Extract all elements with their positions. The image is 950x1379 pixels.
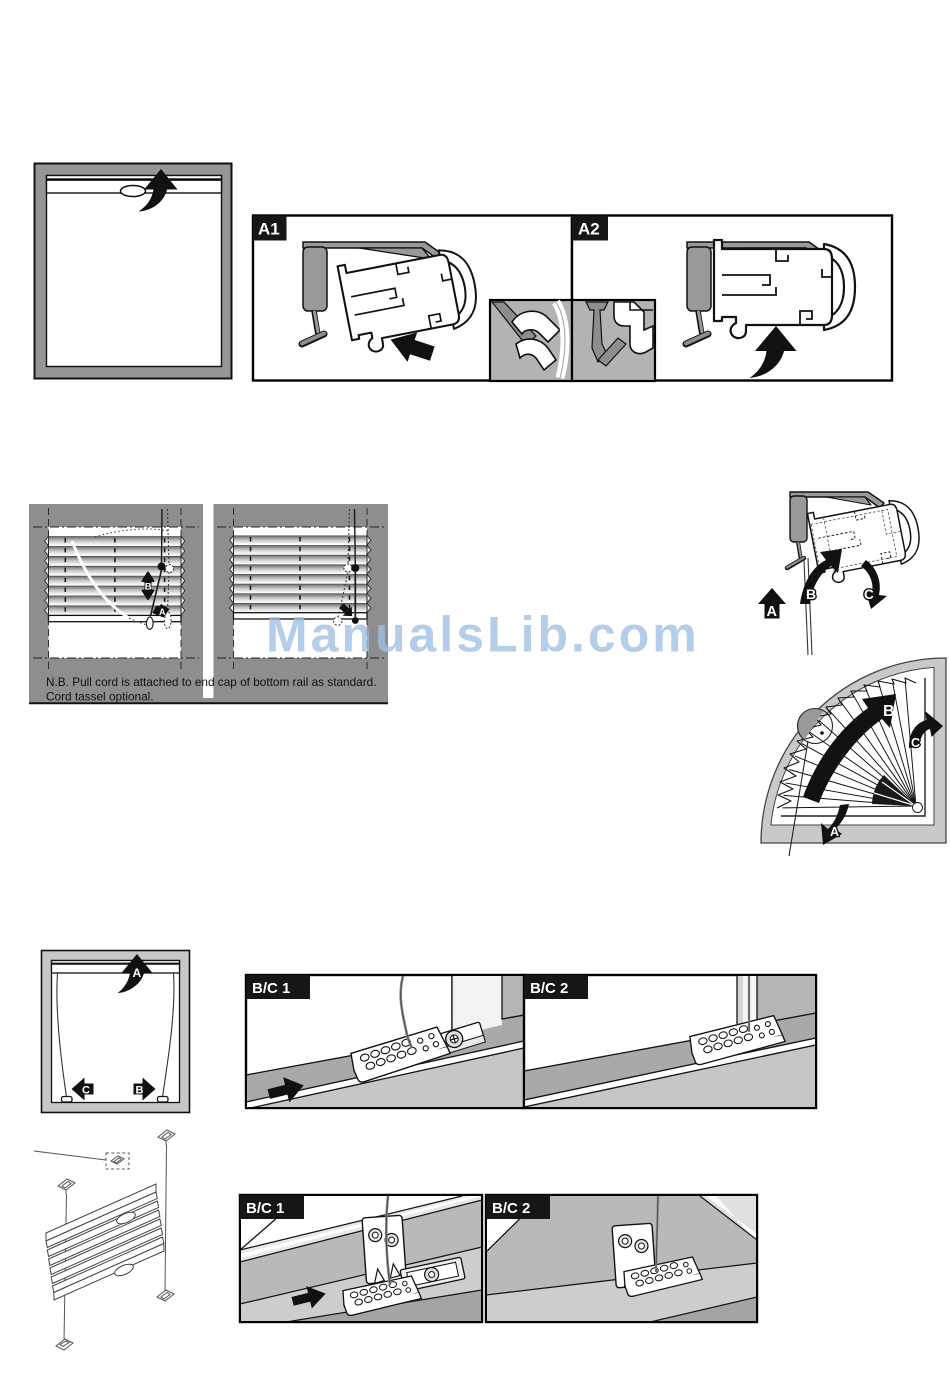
svg-text:ManualsLib.com: ManualsLib.com bbox=[266, 607, 700, 663]
svg-text:B: B bbox=[136, 1085, 144, 1097]
svg-text:B/C 1: B/C 1 bbox=[246, 1200, 284, 1217]
svg-text:B: B bbox=[883, 703, 895, 720]
svg-text:C: C bbox=[864, 587, 874, 602]
svg-text:A: A bbox=[767, 604, 778, 620]
svg-text:B/C 2: B/C 2 bbox=[530, 980, 568, 997]
svg-text:A: A bbox=[830, 825, 839, 839]
svg-text:A1: A1 bbox=[258, 220, 280, 239]
svg-text:A: A bbox=[133, 966, 142, 980]
svg-text:A: A bbox=[159, 607, 166, 617]
svg-text:Cord tassel optional.: Cord tassel optional. bbox=[46, 690, 154, 704]
svg-text:C: C bbox=[911, 736, 920, 750]
svg-text:B/C 1: B/C 1 bbox=[252, 980, 290, 997]
svg-text:C: C bbox=[82, 1085, 90, 1097]
svg-text:B: B bbox=[806, 586, 816, 602]
svg-text:N.B. Pull cord is attached to: N.B. Pull cord is attached to end cap of… bbox=[46, 675, 377, 689]
svg-text:A2: A2 bbox=[578, 220, 600, 239]
svg-text:B: B bbox=[145, 582, 152, 593]
svg-text:B/C 2: B/C 2 bbox=[492, 1200, 530, 1217]
